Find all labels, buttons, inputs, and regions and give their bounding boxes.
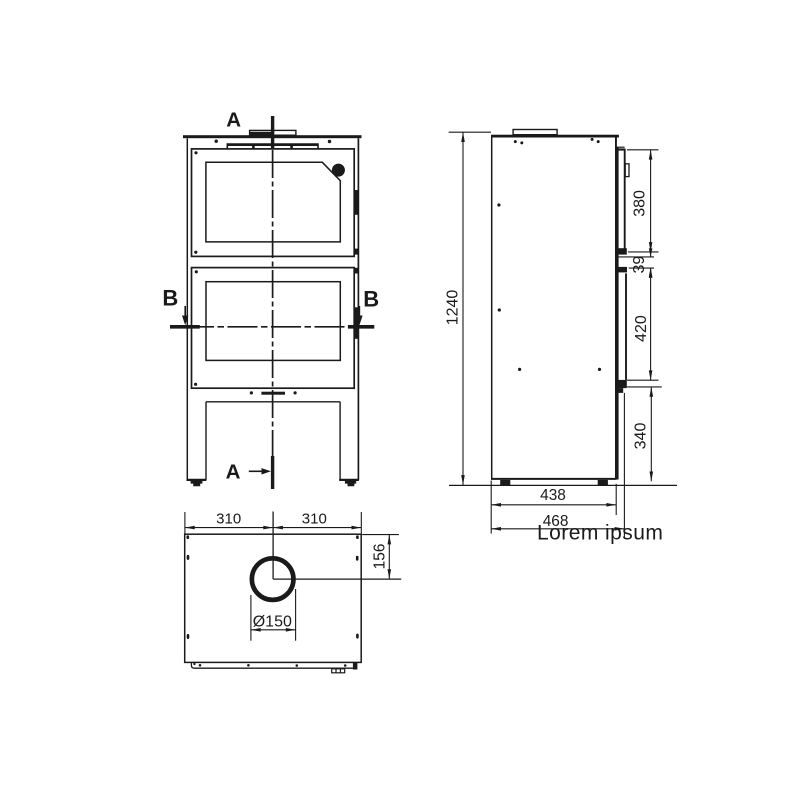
svg-text:310: 310 (216, 511, 241, 528)
svg-text:420: 420 (633, 315, 650, 342)
svg-text:A: A (226, 461, 241, 484)
svg-text:156: 156 (372, 543, 389, 569)
svg-text:B: B (162, 285, 178, 310)
svg-text:340: 340 (633, 423, 650, 450)
svg-text:B: B (363, 286, 379, 311)
svg-text:1240: 1240 (445, 290, 462, 326)
svg-text:Lorem ipsum: Lorem ipsum (537, 522, 663, 545)
svg-text:438: 438 (540, 487, 566, 504)
svg-text:Ø150: Ø150 (253, 613, 292, 630)
svg-text:380: 380 (632, 190, 649, 217)
svg-text:39: 39 (631, 256, 648, 274)
svg-text:A: A (226, 109, 241, 132)
svg-text:310: 310 (302, 511, 327, 528)
